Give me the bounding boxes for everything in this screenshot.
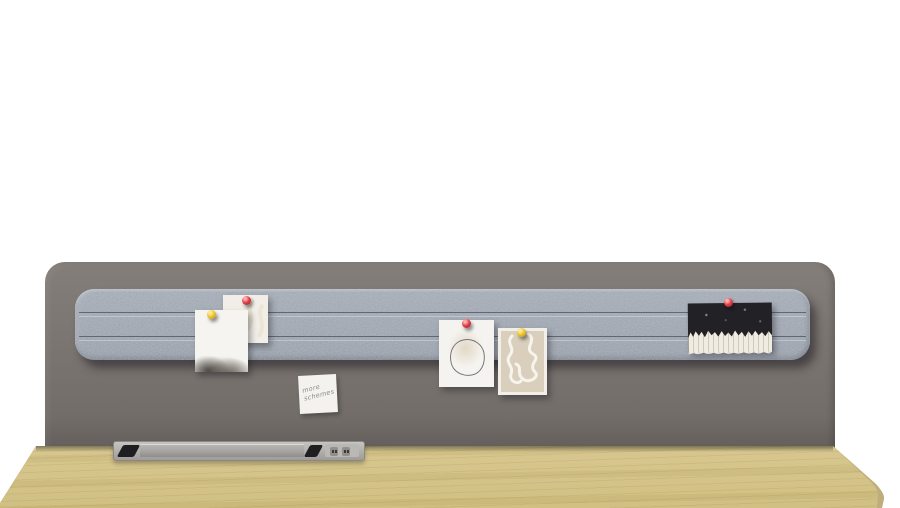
power-outlet-plate — [325, 444, 359, 457]
red-push-pin — [242, 296, 251, 305]
cable-slot-left — [117, 445, 140, 457]
power-socket — [330, 447, 338, 456]
red-push-pin — [462, 319, 471, 328]
red-push-pin — [724, 298, 733, 307]
yellow-push-pin — [207, 310, 216, 319]
scene: more schemes — [0, 0, 900, 508]
white-squiggle-lines — [501, 331, 544, 392]
white-fringe-edge — [688, 329, 772, 355]
sticky-note: more schemes — [298, 374, 338, 414]
black-swatch-card — [688, 303, 773, 353]
cable-slot-right — [304, 445, 323, 457]
abstract-art-canvas — [501, 331, 544, 392]
power-socket — [342, 447, 350, 456]
pinned-paper-circle-sketch — [439, 320, 494, 387]
sticky-note-handwriting: more schemes — [302, 380, 337, 402]
cable-power-module — [113, 441, 365, 461]
pinned-paper-abstract-art — [498, 328, 547, 395]
pinned-paper-smoke-watercolor — [195, 310, 248, 372]
module-flip-lid — [140, 444, 304, 457]
yellow-push-pin — [517, 328, 526, 337]
hand-drawn-circle — [447, 336, 488, 379]
